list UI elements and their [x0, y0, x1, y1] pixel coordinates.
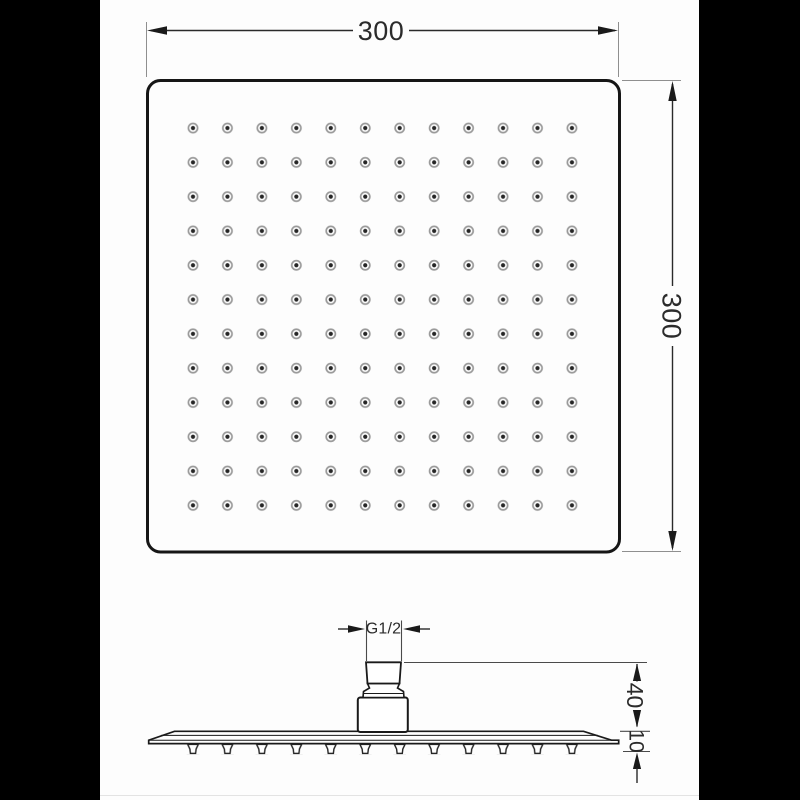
dimension-arm-height: 40	[404, 663, 648, 728]
dim-height-label: 300	[657, 293, 687, 340]
connector-body	[358, 698, 408, 733]
dim-plate-thickness-label: 10	[625, 729, 648, 752]
technical-drawing: 300 300	[0, 0, 800, 800]
side-view	[149, 662, 619, 754]
arrow-right-icon	[598, 26, 618, 34]
arrow-up-icon	[668, 81, 676, 101]
nozzle-tips-row	[176, 744, 589, 755]
connector-collar	[363, 684, 404, 698]
dimension-height: 300	[622, 81, 687, 552]
arrow-down-icon	[668, 531, 676, 551]
arrow-left-icon	[147, 26, 167, 34]
dimension-plate-thickness: 10	[620, 729, 650, 783]
arrow-up-icon	[633, 753, 641, 770]
arrow-up-icon	[633, 664, 641, 682]
dimension-width: 300	[147, 16, 619, 77]
dim-arm-height-label: 40	[622, 683, 648, 709]
dim-width-label: 300	[358, 16, 405, 46]
plate-side-profile	[149, 731, 619, 743]
arrow-right-icon	[348, 625, 365, 633]
thread-size-label: G1/2	[366, 621, 402, 638]
dimension-thread: G1/2	[338, 621, 430, 662]
product-drawing-page: 300 300	[0, 0, 800, 800]
thread-nipple	[366, 662, 401, 683]
arrow-down-icon	[633, 710, 641, 728]
arrow-left-icon	[403, 625, 420, 633]
front-view	[148, 81, 620, 553]
nozzle-grid	[176, 111, 589, 523]
